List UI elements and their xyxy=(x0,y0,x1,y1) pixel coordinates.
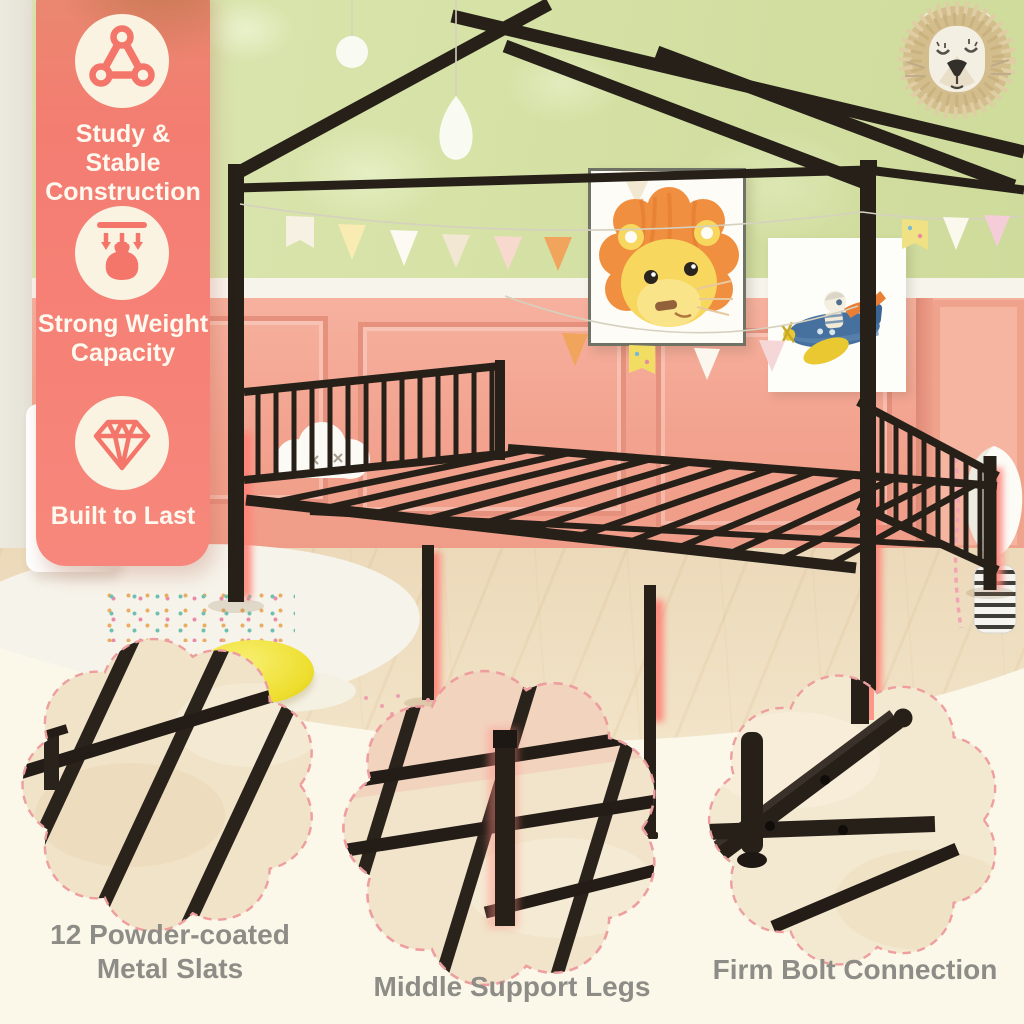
feature-title-construction: Study & Stable Construction xyxy=(36,120,210,207)
callout-metal-slats xyxy=(0,615,340,955)
triangle-link-icon xyxy=(75,14,169,108)
bunting-garland xyxy=(240,204,1022,380)
diamond-icon xyxy=(75,396,169,490)
product-infographic-canopy-bed: 12 Powder-coated Metal Slats Middle Supp… xyxy=(0,0,1024,1024)
weight-capacity-icon xyxy=(75,206,169,300)
feature-title-built-to-last: Built to Last xyxy=(36,502,210,531)
callout-support-leg xyxy=(332,658,672,998)
callout-label-support-legs: Middle Support Legs xyxy=(312,970,712,1004)
feature-panel: Study & Stable Construction Strong Weigh… xyxy=(36,0,210,566)
callout-bolt-connection xyxy=(685,650,1024,990)
callout-label-metal-slats: 12 Powder-coated Metal Slats xyxy=(0,918,350,986)
feature-title-weight-capacity: Strong Weight Capacity xyxy=(36,310,210,368)
callout-label-bolt-connection: Firm Bolt Connection xyxy=(655,953,1024,987)
